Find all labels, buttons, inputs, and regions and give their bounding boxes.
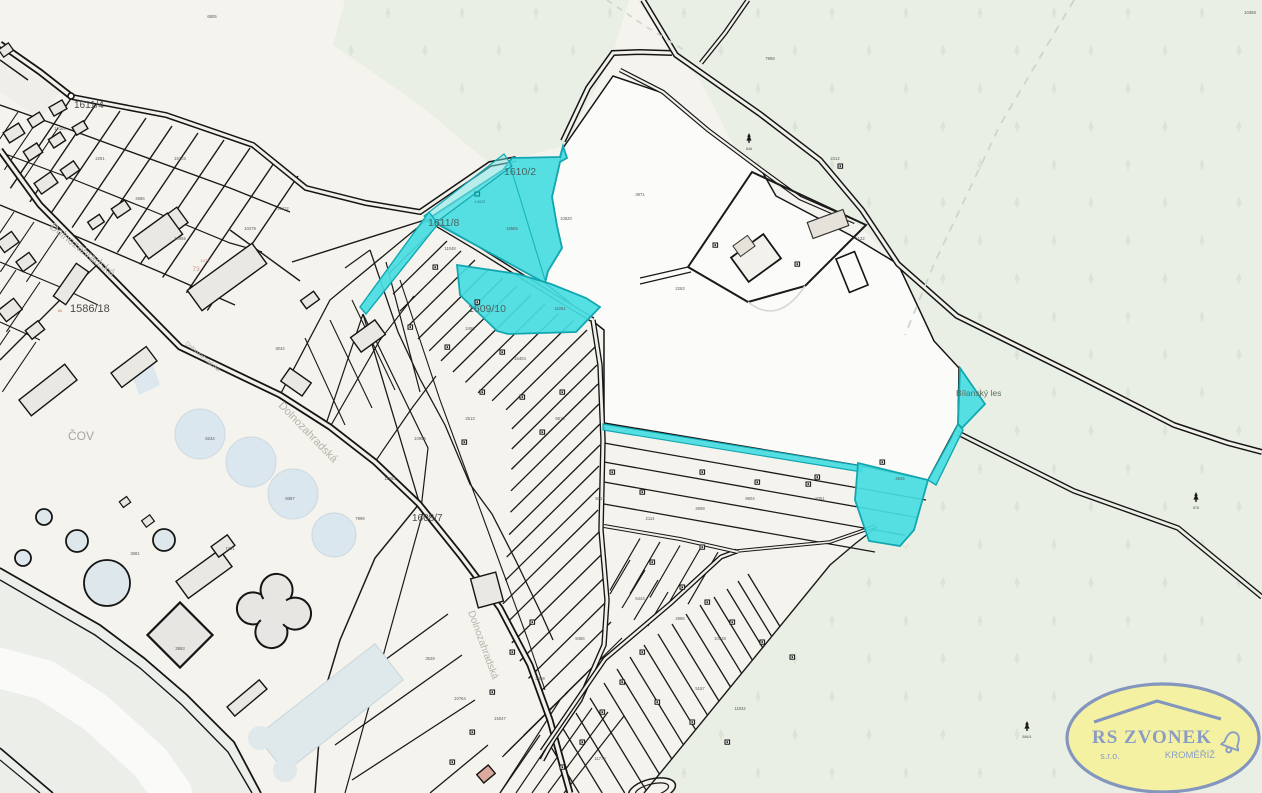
svg-text:5122: 5122	[855, 236, 865, 241]
svg-text:3971: 3971	[635, 192, 645, 197]
svg-text:10279: 10279	[244, 226, 256, 231]
svg-text:1611/4: 1611/4	[74, 100, 104, 111]
svg-text:1475: 1475	[201, 258, 211, 263]
svg-text:10764: 10764	[454, 696, 466, 701]
svg-text:3042: 3042	[275, 346, 285, 351]
svg-text:s.r.o.: s.r.o.	[1100, 751, 1120, 761]
svg-text:2908: 2908	[695, 506, 705, 511]
svg-text:11832: 11832	[734, 706, 746, 711]
svg-text:2986: 2986	[675, 616, 685, 621]
svg-text:876: 876	[1193, 506, 1199, 510]
svg-text:7999: 7999	[355, 516, 365, 521]
svg-text:7968: 7968	[765, 56, 775, 61]
svg-text:2450: 2450	[465, 326, 475, 331]
svg-text:8604: 8604	[745, 496, 755, 501]
svg-text:2513: 2513	[465, 416, 475, 421]
svg-text:5017: 5017	[595, 496, 605, 501]
svg-text:3528: 3528	[425, 656, 435, 661]
svg-text:2114: 2114	[645, 516, 655, 521]
svg-text:86: 86	[58, 308, 63, 313]
svg-text:14955: 14955	[174, 236, 186, 241]
svg-text:12164: 12164	[54, 126, 66, 131]
svg-text:10955: 10955	[414, 436, 426, 441]
svg-text:16103: 16103	[174, 156, 186, 161]
svg-text:8455: 8455	[575, 636, 585, 641]
svg-text:11779: 11779	[594, 756, 606, 761]
svg-text:10620: 10620	[560, 216, 572, 221]
svg-text:Bílanský les: Bílanský les	[956, 388, 1001, 398]
svg-text:11051: 11051	[554, 306, 566, 311]
svg-text:2291: 2291	[95, 156, 105, 161]
svg-text:586/1: 586/1	[1022, 735, 1032, 739]
svg-text:11048: 11048	[444, 246, 456, 251]
svg-text:KROMĚŘÍŽ: KROMĚŘÍŽ	[1165, 750, 1215, 761]
svg-text:8351: 8351	[815, 496, 825, 501]
svg-text:846: 846	[746, 147, 752, 151]
svg-text:15565: 15565	[506, 226, 518, 231]
svg-text:3681: 3681	[130, 551, 140, 556]
svg-text:6244: 6244	[205, 436, 215, 441]
svg-text:5157: 5157	[695, 686, 705, 691]
svg-text:2686: 2686	[135, 196, 145, 201]
svg-text:9813: 9813	[555, 416, 565, 421]
svg-text:1611/8: 1611/8	[428, 217, 459, 229]
svg-text:1586/18: 1586/18	[70, 303, 110, 315]
svg-text:15047: 15047	[494, 716, 506, 721]
svg-text:14023: 14023	[475, 200, 486, 204]
svg-text:73: 73	[192, 266, 200, 273]
svg-text:10528: 10528	[714, 636, 726, 641]
svg-text:11093: 11093	[384, 476, 396, 481]
svg-text:ČOV: ČOV	[68, 428, 94, 443]
svg-text:2468: 2468	[535, 676, 545, 681]
svg-text:2263: 2263	[675, 286, 685, 291]
svg-text:2644: 2644	[895, 476, 905, 481]
svg-text:1608/7: 1608/7	[412, 513, 443, 524]
svg-text:10358: 10358	[1244, 10, 1256, 15]
svg-text:7491: 7491	[225, 546, 235, 551]
svg-text:5443: 5443	[635, 596, 645, 601]
svg-text:RS ZVONEK: RS ZVONEK	[1092, 727, 1212, 748]
svg-text:16112: 16112	[277, 206, 289, 211]
svg-text:6805: 6805	[207, 14, 217, 19]
svg-text:1609/10: 1609/10	[468, 303, 506, 315]
svg-text:2312: 2312	[830, 156, 840, 161]
svg-text:3863: 3863	[175, 646, 185, 651]
svg-text:1610/2: 1610/2	[504, 166, 536, 178]
svg-text:16404: 16404	[514, 356, 526, 361]
svg-text:8367: 8367	[285, 496, 295, 501]
